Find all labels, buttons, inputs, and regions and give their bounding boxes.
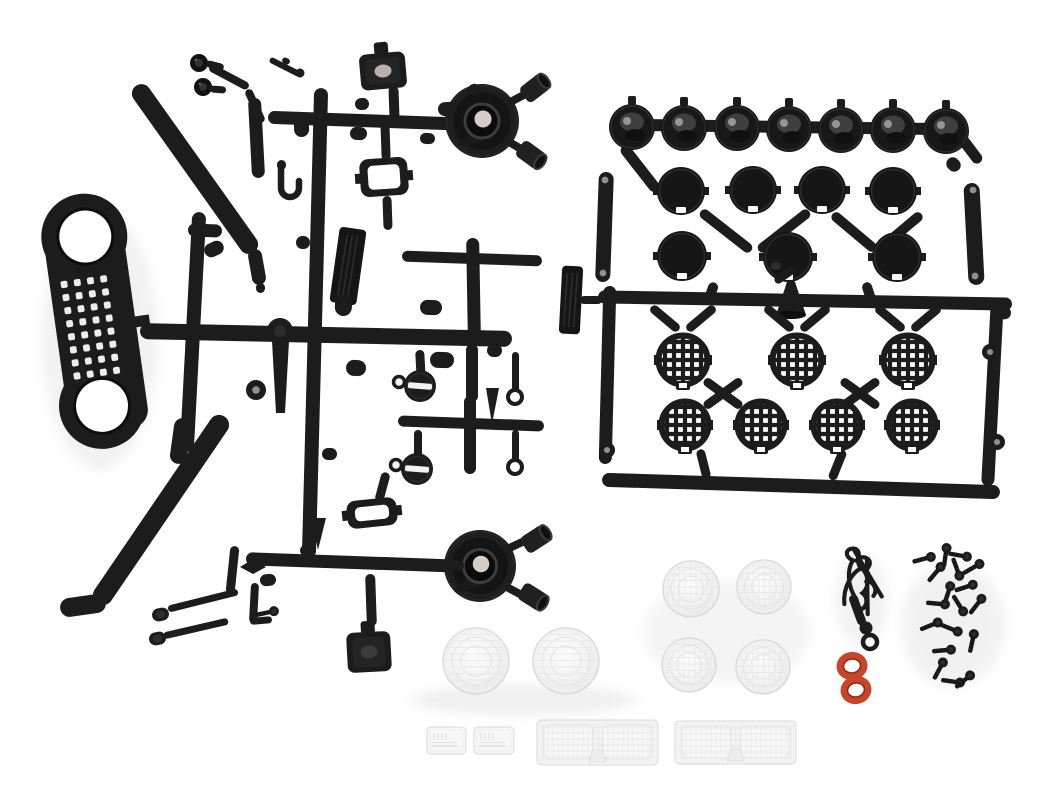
light-bucket-cup [818, 99, 864, 153]
clear-lens-small [662, 638, 716, 692]
round-light-cover [794, 166, 850, 214]
clear-light-bar-panel [675, 721, 796, 764]
frame-left [599, 286, 617, 464]
round-light-cover [725, 166, 781, 214]
sprue-a-black-parts-tree [30, 40, 555, 673]
frame-right [981, 300, 1004, 486]
round-light-cover [865, 167, 921, 215]
link-bar-right [963, 183, 984, 286]
mesh-light-guard [657, 399, 713, 454]
round-light-cover [653, 231, 711, 281]
slotted-disc [391, 453, 434, 485]
link-bar-left [595, 172, 614, 282]
light-bucket-cup [609, 96, 655, 150]
sprue-b-light-set-tree [559, 96, 1012, 499]
clear-marker-lens [474, 727, 514, 754]
red-o-ring [839, 654, 866, 678]
mesh-light-guard [733, 399, 789, 454]
light-bucket-cup [923, 100, 969, 154]
shock-post [272, 341, 289, 413]
clear-marker-lens [427, 727, 466, 754]
lamp-bezel-top [354, 156, 415, 198]
mesh-light-guard [654, 333, 712, 390]
clear-lens-large [443, 628, 509, 694]
light-bucket-cup [714, 97, 760, 151]
round-side-mirror [194, 78, 212, 96]
clear-lens-small [736, 640, 790, 694]
clear-lens-small [663, 561, 719, 617]
mesh-light-guard [879, 333, 937, 390]
round-light-cover [653, 167, 709, 215]
light-bucket-cup [870, 99, 916, 153]
headlight-pod-top [445, 84, 519, 158]
screw [911, 551, 937, 567]
red-o-ring [842, 677, 870, 703]
product-photo-rc-scale-accessory-parts [0, 0, 1050, 800]
light-mount-top [358, 40, 408, 91]
clear-lens-large [533, 628, 599, 694]
slotted-disc [394, 370, 437, 402]
scene-canvas [0, 0, 1050, 800]
clear-light-bar-panel [537, 720, 658, 765]
screw [947, 548, 972, 562]
mesh-light-guard [768, 333, 826, 390]
round-light-cover [868, 232, 926, 282]
mid-runner [598, 290, 1012, 310]
tow-hook [281, 166, 299, 197]
round-side-mirror [190, 54, 208, 72]
clear-lens-small [737, 560, 791, 614]
frame-bottom [602, 473, 1000, 499]
lamp-bezel-bottom [341, 496, 404, 530]
light-bucket-cup [661, 97, 707, 151]
light-mount-bottom [345, 620, 392, 673]
runner-vertical-main [302, 88, 328, 558]
light-bucket-cup [766, 98, 812, 152]
mesh-light-guard [809, 399, 865, 454]
mesh-light-guard [884, 399, 940, 454]
